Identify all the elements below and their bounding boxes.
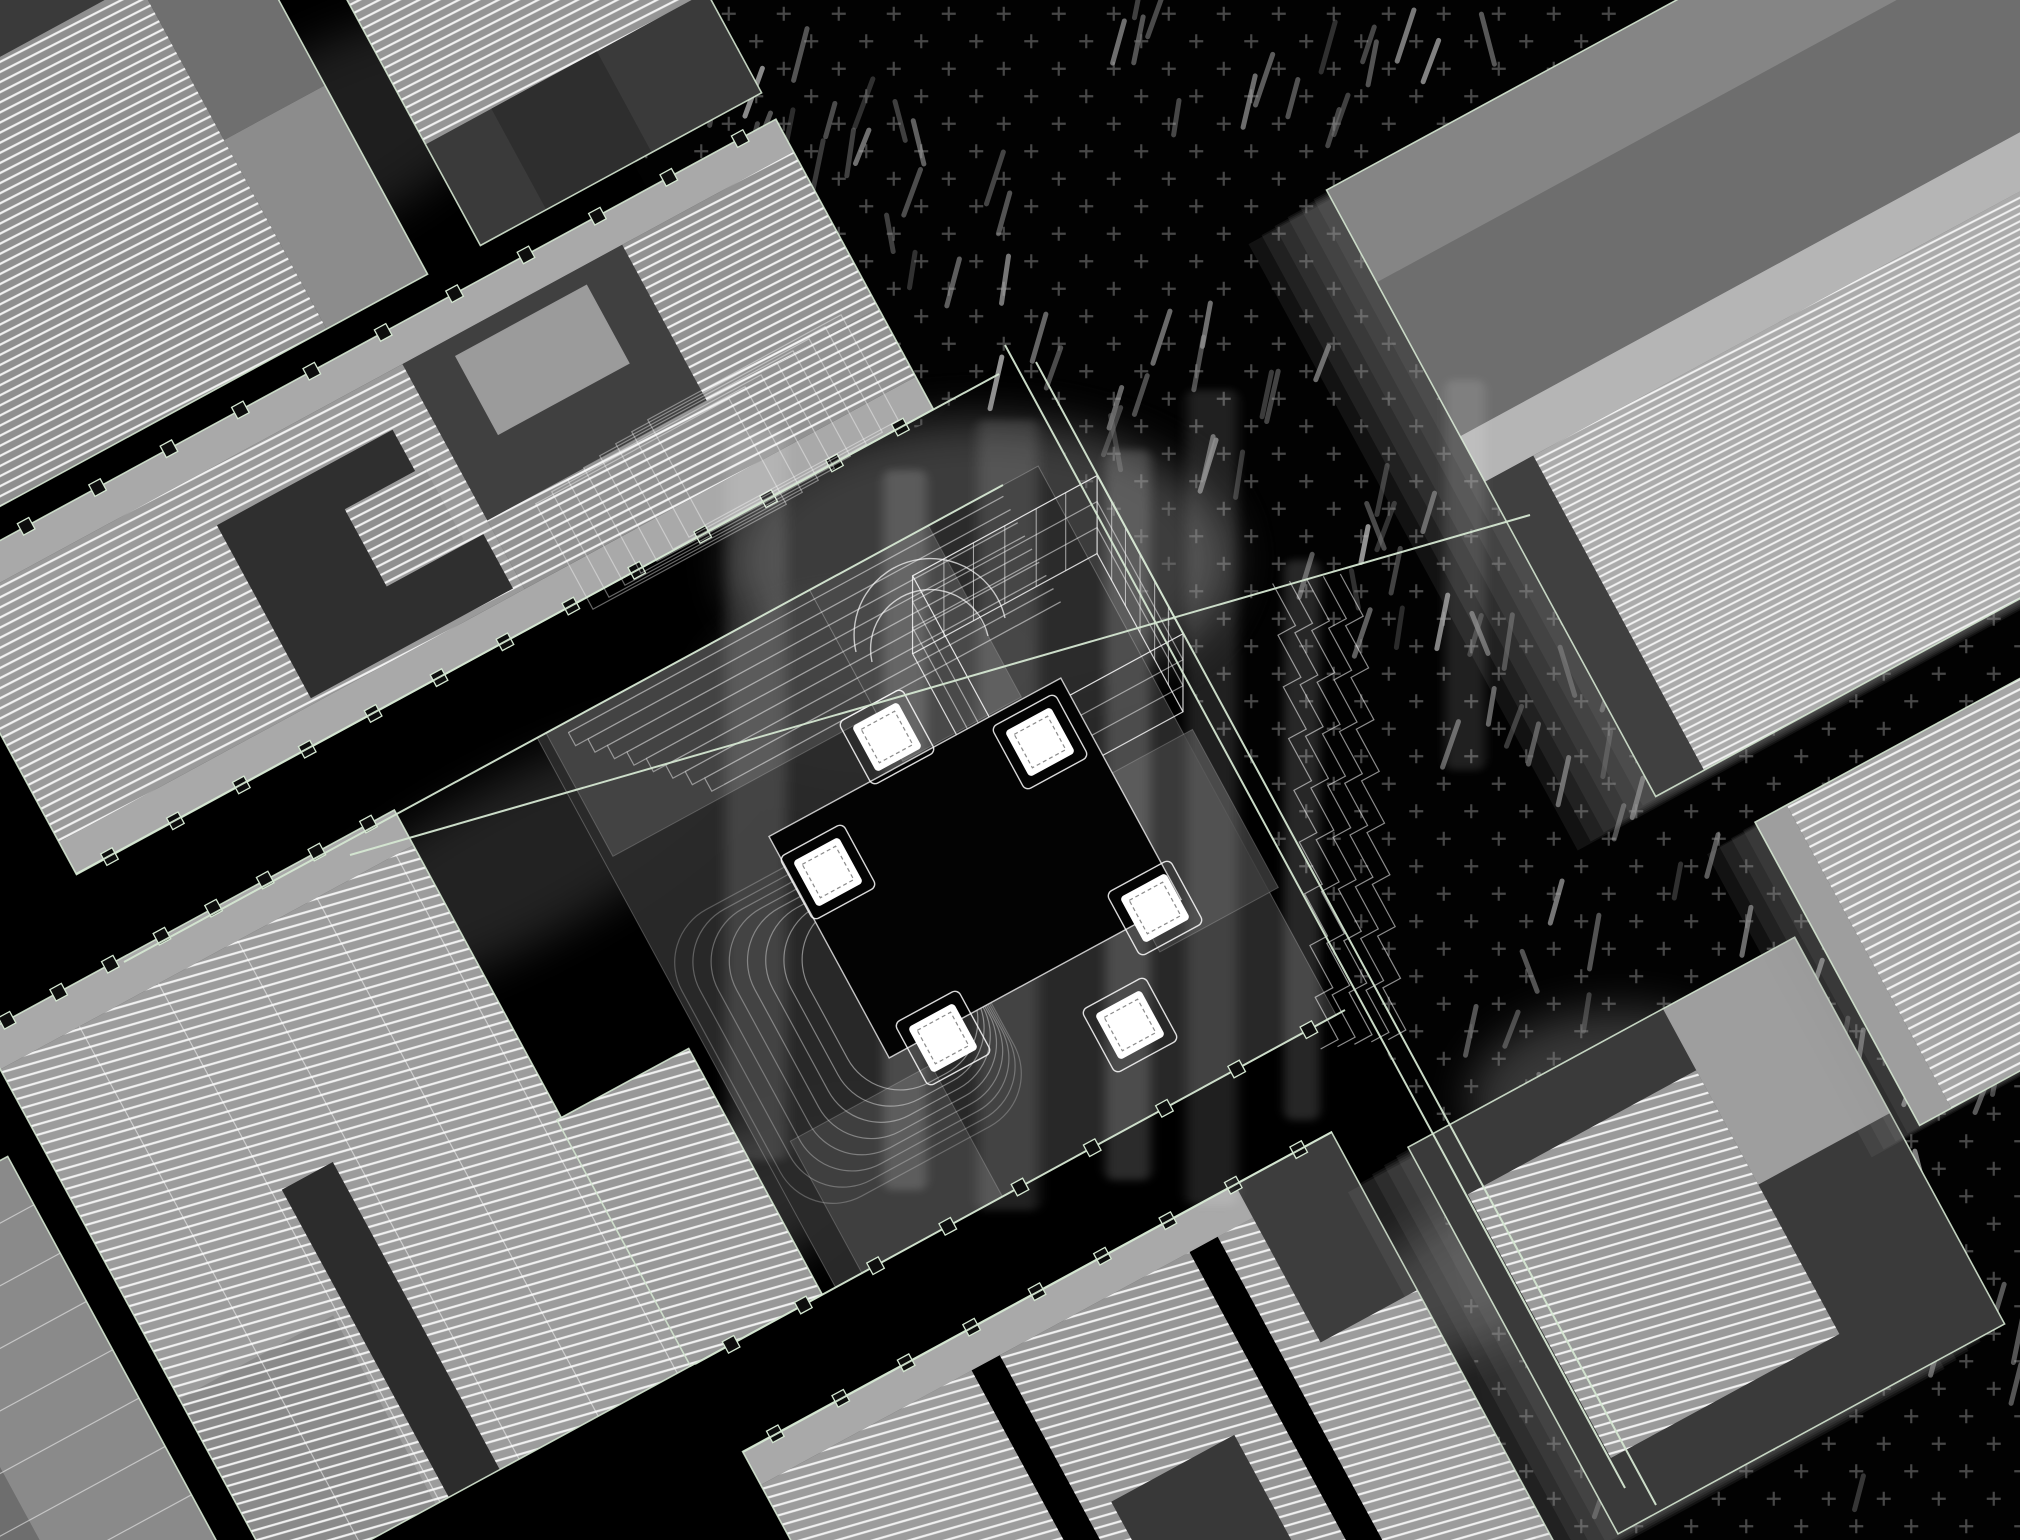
ghost-tower-bar (1279, 560, 1325, 1120)
site-plan-map (0, 0, 2020, 1540)
ghost-tower-bar (717, 430, 795, 1160)
site-plan-page (0, 0, 2020, 1540)
ghost-tower-bar (1439, 380, 1491, 770)
